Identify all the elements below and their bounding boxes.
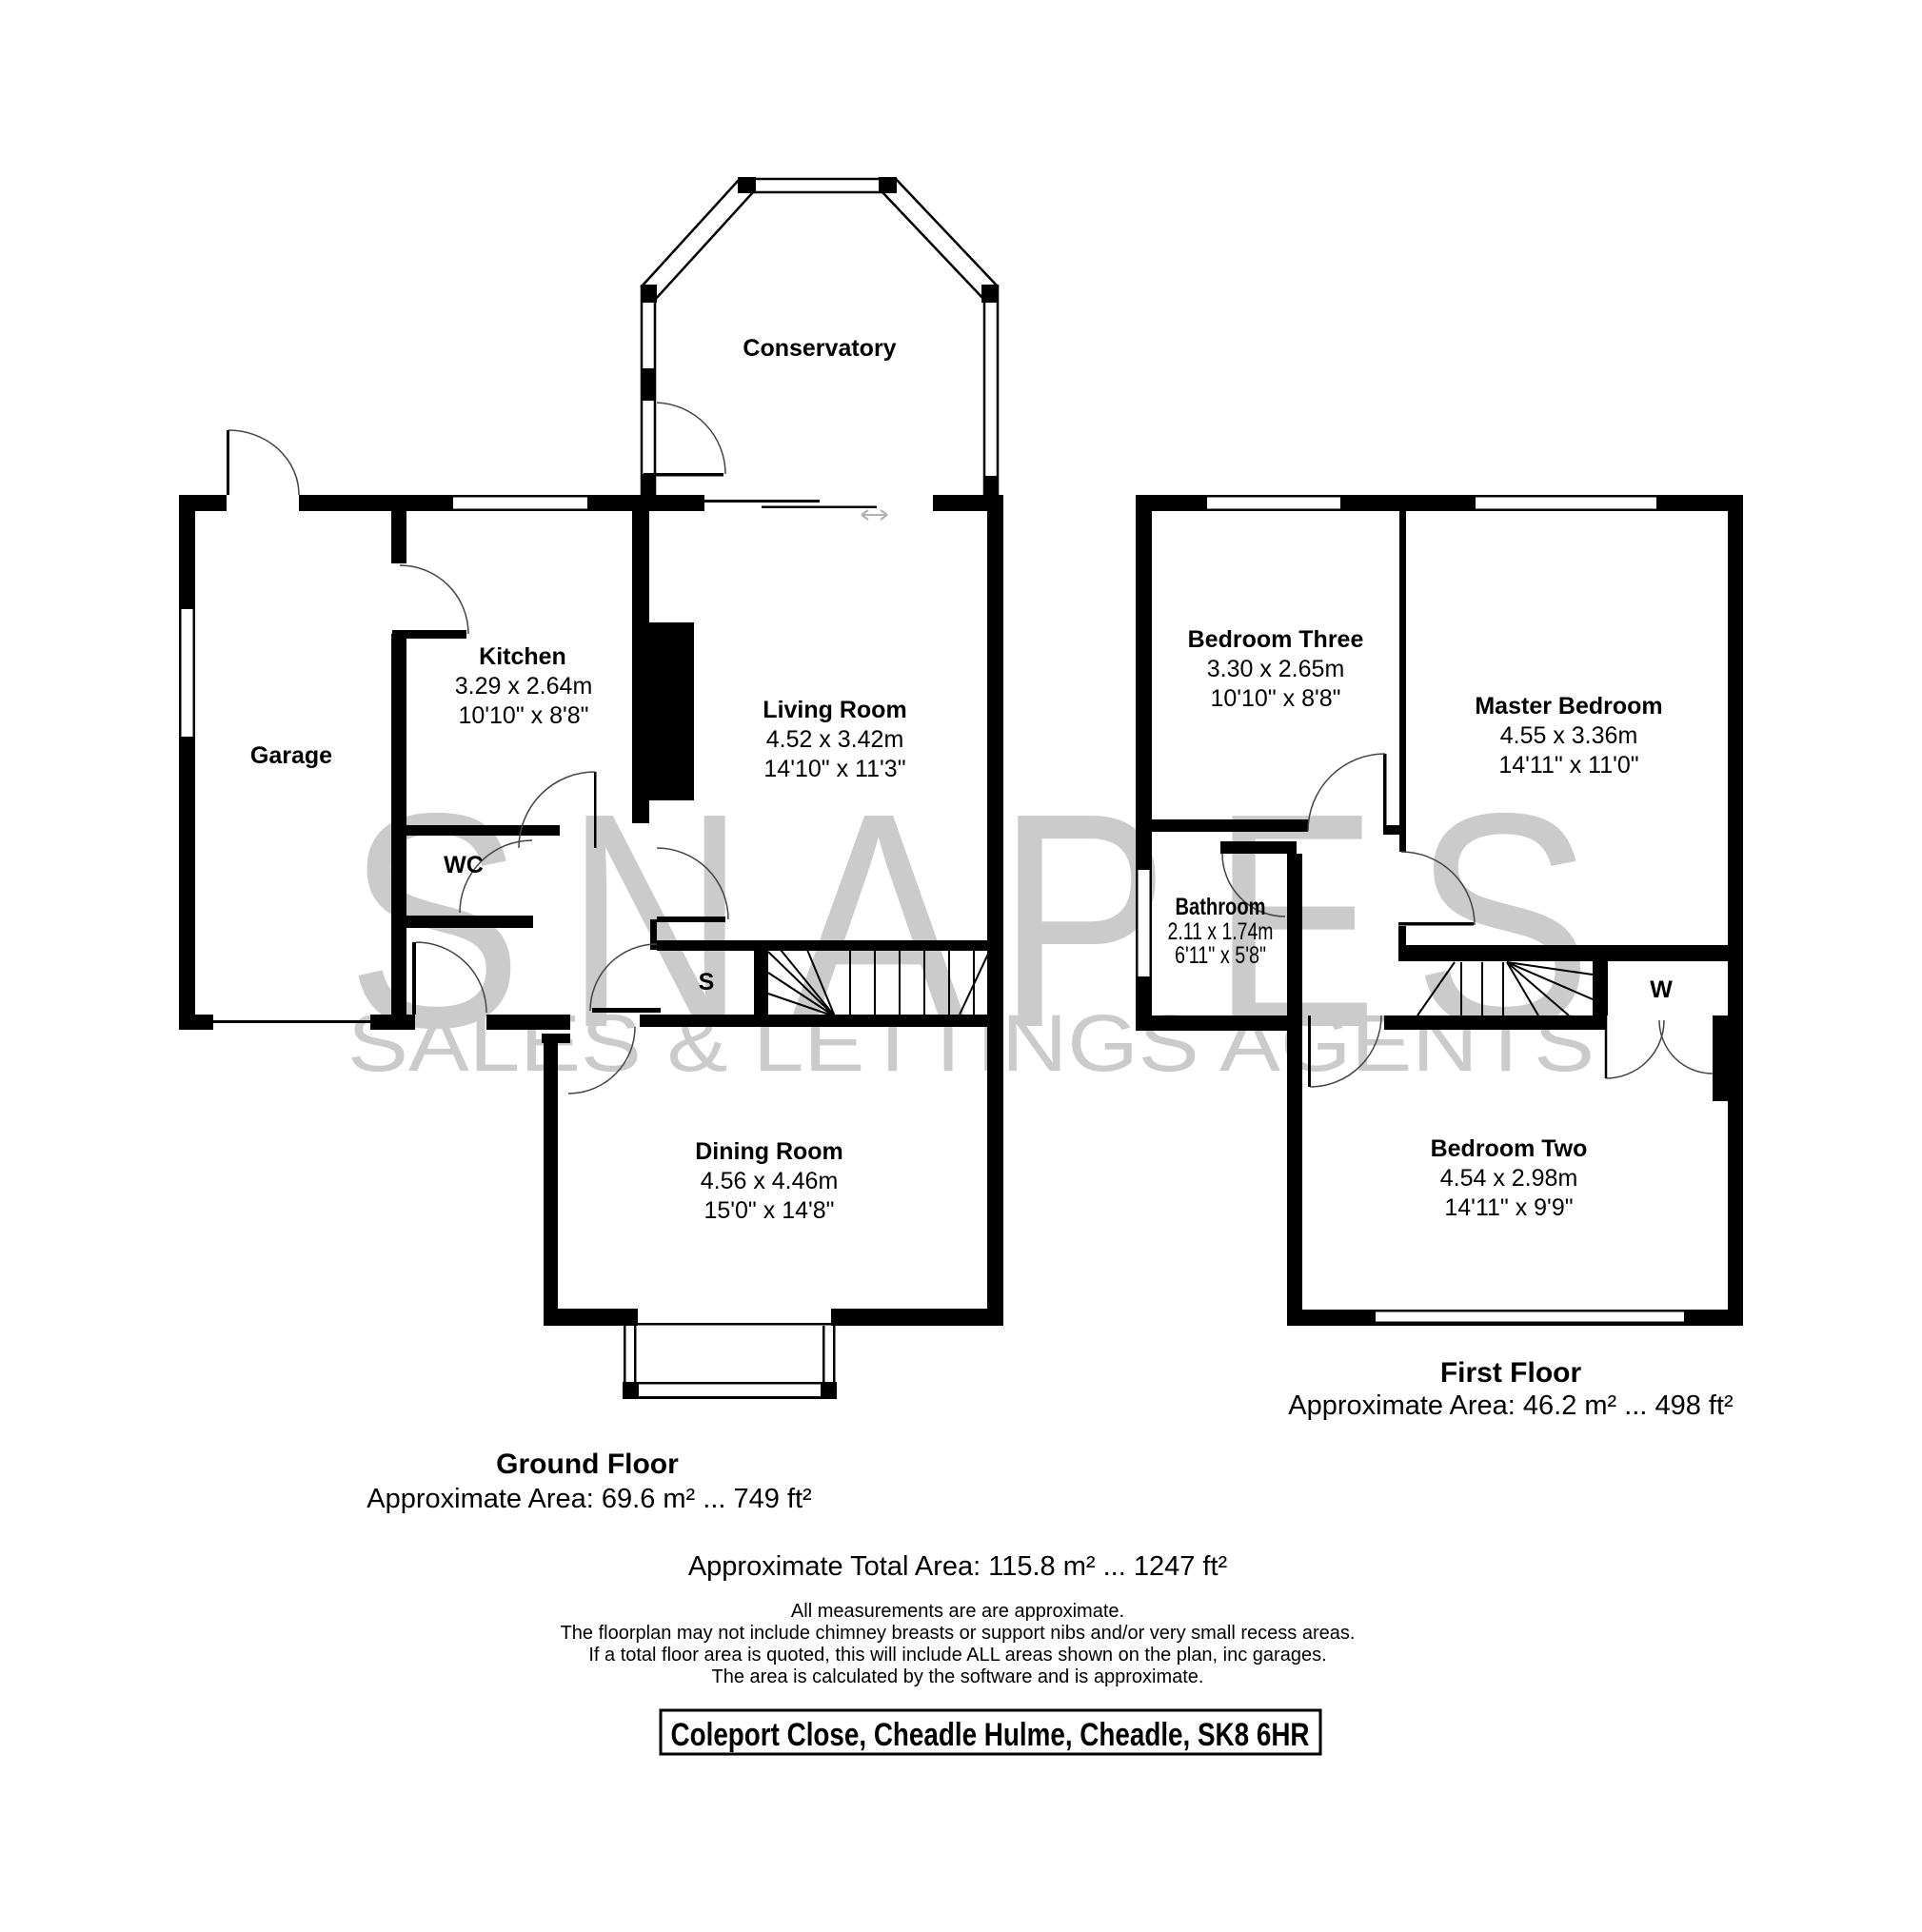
svg-text:Kitchen: Kitchen [479, 643, 566, 670]
svg-text:10'10" x 8'8": 10'10" x 8'8" [1210, 685, 1340, 712]
svg-text:Approximate Area: 69.6 m² ...: Approximate Area: 69.6 m² ... 749 ft² [367, 1484, 812, 1514]
svg-text:SALES & LETTINGS AGENTS: SALES & LETTINGS AGENTS [347, 998, 1595, 1088]
svg-text:14'11" x 9'9": 14'11" x 9'9" [1444, 1194, 1573, 1221]
svg-text:14'11" x 11'0": 14'11" x 11'0" [1498, 752, 1638, 779]
svg-text:2.11 x 1.74m: 2.11 x 1.74m [1168, 918, 1274, 945]
svg-text:14'10" x 11'3": 14'10" x 11'3" [763, 756, 905, 782]
svg-text:15'0" x 14'8": 15'0" x 14'8" [703, 1197, 834, 1224]
svg-text:S: S [699, 969, 715, 996]
svg-text:The floorplan may not include: The floorplan may not include chimney br… [561, 1623, 1356, 1644]
svg-text:Dining Room: Dining Room [695, 1138, 843, 1165]
svg-text:Master Bedroom: Master Bedroom [1475, 693, 1662, 720]
svg-text:Approximate Total Area: 115.8: Approximate Total Area: 115.8 m² ... 124… [688, 1551, 1228, 1582]
svg-text:WC: WC [444, 852, 484, 878]
svg-text:The area is calculated by the: The area is calculated by the software a… [712, 1666, 1204, 1687]
svg-text:4.56 x 4.46m: 4.56 x 4.46m [701, 1168, 839, 1194]
svg-text:6'11" x 5'8": 6'11" x 5'8" [1175, 942, 1266, 969]
svg-text:Living Room: Living Room [763, 697, 906, 723]
svg-text:10'10" x 8'8": 10'10" x 8'8" [458, 702, 588, 729]
svg-text:Approximate Area: 46.2 m² ...: Approximate Area: 46.2 m² ... 498 ft² [1288, 1390, 1734, 1421]
svg-text:4.54 x 2.98m: 4.54 x 2.98m [1440, 1165, 1578, 1192]
svg-text:Bathroom: Bathroom [1176, 894, 1266, 920]
svg-text:Coleport Close, Cheadle Hulme,: Coleport Close, Cheadle Hulme, Cheadle, … [671, 1717, 1310, 1753]
svg-text:All measurements are are appro: All measurements are are approximate. [791, 1601, 1124, 1622]
svg-text:First Floor: First Floor [1440, 1357, 1582, 1389]
svg-text:3.29 x 2.64m: 3.29 x 2.64m [455, 673, 593, 700]
svg-text:Ground Floor: Ground Floor [496, 1449, 679, 1480]
svg-text:Garage: Garage [250, 742, 332, 769]
svg-text:3.30 x 2.65m: 3.30 x 2.65m [1207, 656, 1345, 682]
svg-text:Bedroom Three: Bedroom Three [1188, 626, 1364, 653]
svg-text:4.52 x 3.42m: 4.52 x 3.42m [766, 726, 904, 753]
svg-text:Conservatory: Conservatory [743, 335, 896, 362]
svg-text:If a total floor area is quote: If a total floor area is quoted, this wi… [588, 1645, 1326, 1666]
svg-text:Bedroom Two: Bedroom Two [1431, 1135, 1588, 1162]
svg-text:4.55 x 3.36m: 4.55 x 3.36m [1500, 722, 1638, 749]
svg-text:W: W [1650, 976, 1673, 1003]
